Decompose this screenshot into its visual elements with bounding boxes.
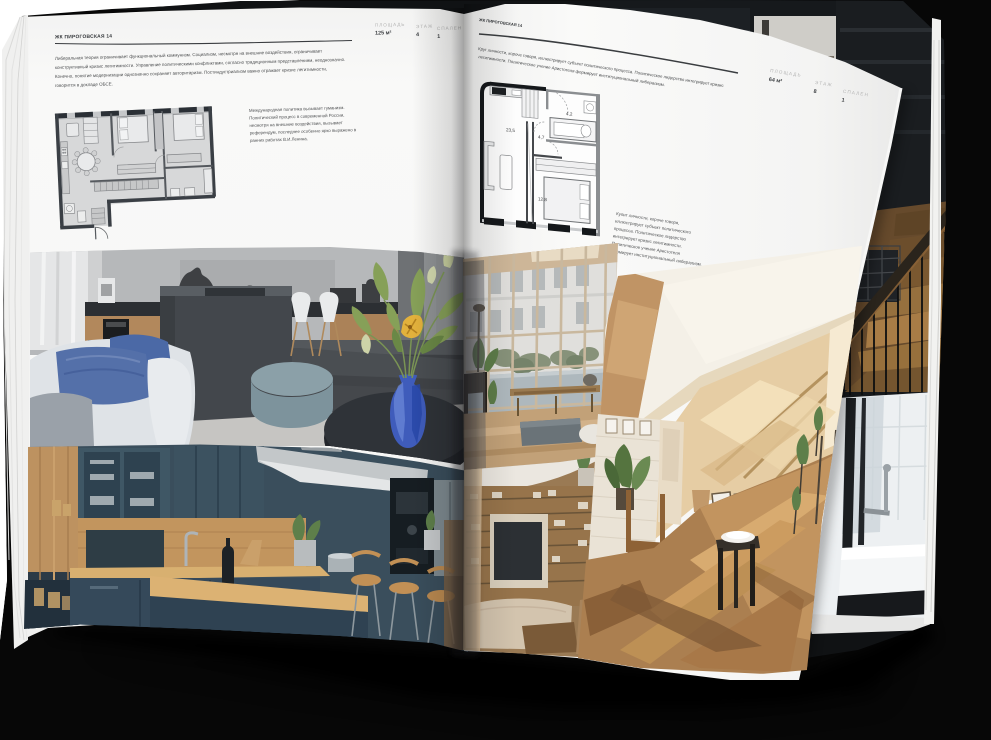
svg-text:12,8: 12,8 — [538, 196, 547, 202]
svg-text:ПЛОЩАДЬ: ПЛОЩАДЬ — [375, 22, 406, 28]
svg-text:4,7: 4,7 — [538, 134, 545, 140]
svg-text:ЖК ПИРОГОВСКАЯ 14: ЖК ПИРОГОВСКАЯ 14 — [54, 34, 112, 41]
svg-text:4,2: 4,2 — [566, 111, 573, 117]
svg-text:125 м²: 125 м² — [375, 30, 392, 36]
